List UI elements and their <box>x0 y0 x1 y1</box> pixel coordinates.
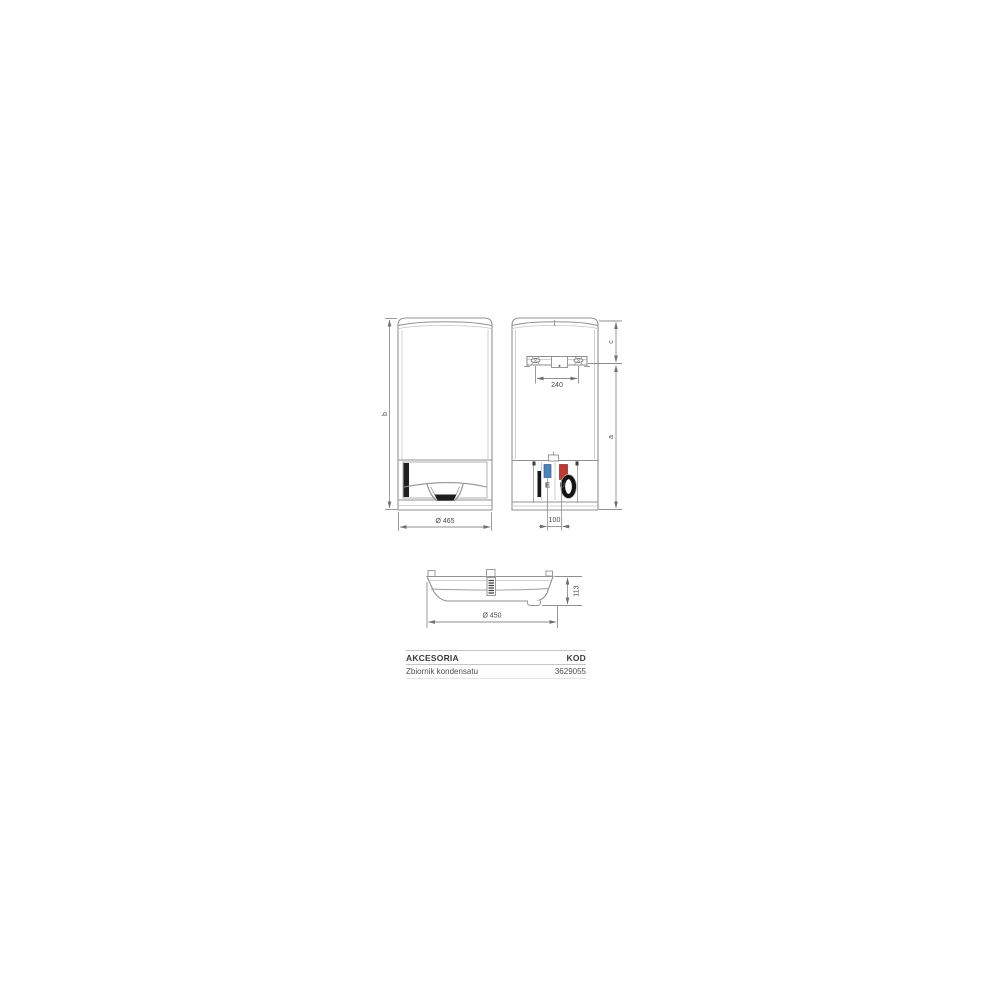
accessory-name: Zbiornik kondensatu <box>406 667 478 676</box>
dim-label-100: 100 <box>549 517 561 524</box>
tray-drain-notch <box>528 601 541 606</box>
tray-center-clip <box>487 578 496 596</box>
accessories-table-header: AKCESORIA KOD <box>406 650 586 665</box>
bracket-center-dot <box>559 365 561 367</box>
accessory-code: 3629055 <box>555 667 586 676</box>
front-view <box>398 318 492 510</box>
dark-bar <box>538 471 542 497</box>
tray-view <box>427 570 553 606</box>
drawer-dark-slot <box>404 463 410 497</box>
dim-label-113: 113 <box>574 585 581 596</box>
corner-tick-left <box>533 462 536 466</box>
accessories-table-row: Zbiornik kondensatu 3629055 <box>406 665 586 679</box>
dimension-drawing: b Ø 465 <box>0 0 1000 1000</box>
tray-tab-left <box>428 571 435 577</box>
back-view <box>512 318 598 510</box>
dim-label-tray-width: Ø 450 <box>482 613 501 620</box>
outlet-label: U <box>560 481 565 490</box>
accessories-table: AKCESORIA KOD Zbiornik kondensatu 362905… <box>406 650 586 679</box>
top-fitting <box>549 455 559 461</box>
dim-label-b: b <box>382 412 389 416</box>
handle-dark-lip <box>435 495 457 501</box>
dim-label-c: c <box>608 340 615 344</box>
accessories-header-label: AKCESORIA <box>406 653 459 663</box>
dim-label-a: a <box>608 435 615 439</box>
cold-inlet-pipe <box>544 465 551 478</box>
corner-tick-right <box>576 462 579 466</box>
dim-label-240: 240 <box>551 382 563 389</box>
tray-tab-center <box>487 570 496 577</box>
code-header-label: KOD <box>567 653 587 663</box>
tray-tab-right <box>546 571 553 576</box>
page: b Ø 465 <box>0 0 1000 1000</box>
front-outline <box>398 318 492 510</box>
dim-label-front-width: Ø 465 <box>435 518 454 525</box>
